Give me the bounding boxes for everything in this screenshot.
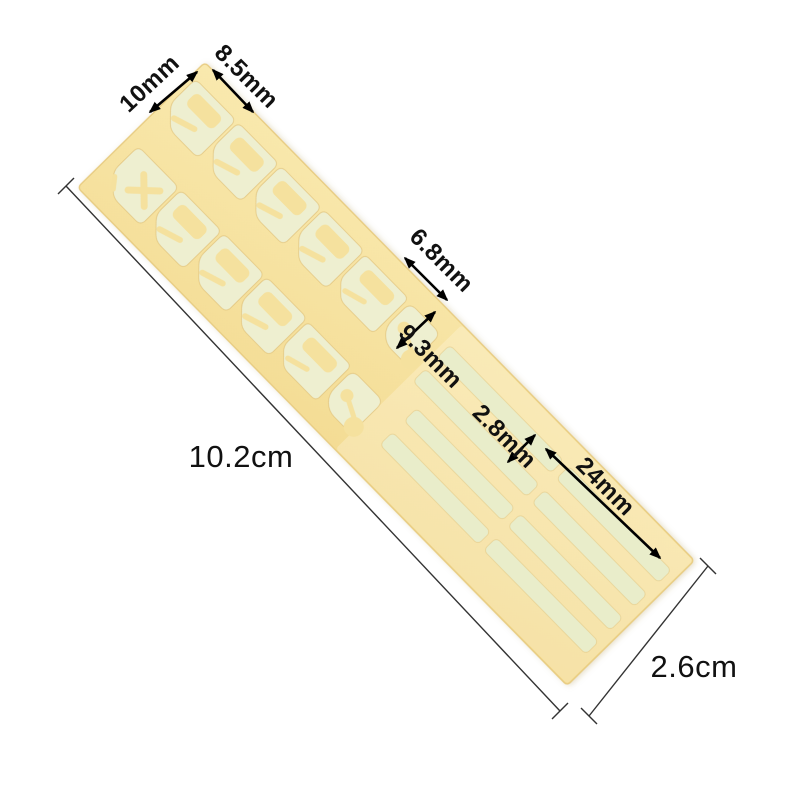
tick-sheet-length-bottom: [552, 703, 568, 719]
sticker-sheet-graphic: [76, 61, 695, 686]
product-dimension-image: 10mm 8.5mm 6.8mm 9.3mm 2.8mm 24mm 10.2cm…: [0, 0, 800, 800]
tick-sheet-width-bottom: [581, 708, 597, 724]
dimension-label-sheet-length: 10.2cm: [189, 439, 294, 475]
tick-sheet-length-top: [58, 178, 74, 194]
tick-sheet-width-top: [700, 558, 716, 574]
sticker-sheet: [76, 61, 695, 686]
dimension-label-sheet-width: 2.6cm: [651, 649, 738, 685]
